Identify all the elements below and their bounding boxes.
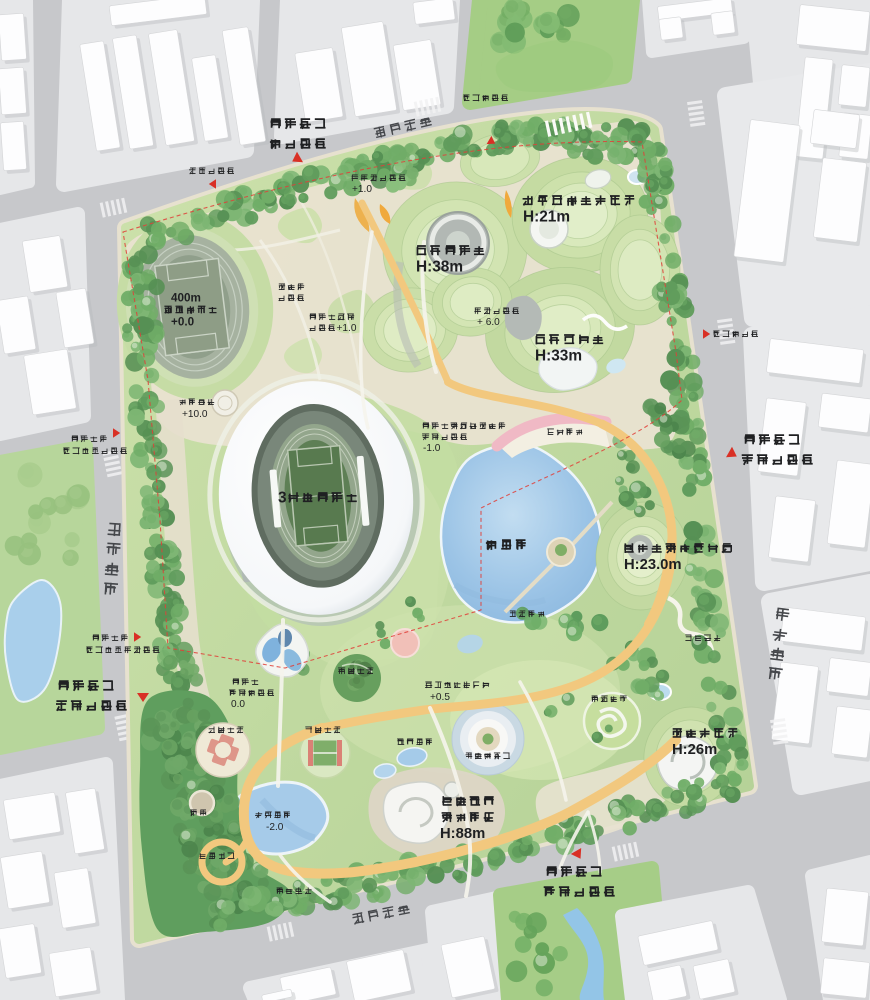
svg-text:+1.0: +1.0 xyxy=(352,184,372,195)
svg-text:H:23.0m: H:23.0m xyxy=(624,557,682,573)
svg-text:H:33m: H:33m xyxy=(535,348,582,365)
svg-text:+10.0: +10.0 xyxy=(182,409,208,420)
svg-text:H:26m: H:26m xyxy=(672,742,717,758)
svg-text:H:88m: H:88m xyxy=(440,826,485,842)
svg-text:H:38m: H:38m xyxy=(416,259,463,276)
svg-text:3: 3 xyxy=(278,490,287,507)
svg-text:-2.0: -2.0 xyxy=(266,822,284,833)
svg-text:400m: 400m xyxy=(171,292,201,305)
svg-text:+0.5: +0.5 xyxy=(430,692,450,703)
svg-text:-1.0: -1.0 xyxy=(423,443,441,454)
svg-text:+ 6.0: + 6.0 xyxy=(477,317,500,328)
svg-text:+1.0: +1.0 xyxy=(337,323,357,334)
svg-text:+0.0: +0.0 xyxy=(171,316,195,329)
svg-text:0.0: 0.0 xyxy=(231,699,245,710)
svg-text:H:21m: H:21m xyxy=(523,209,570,226)
